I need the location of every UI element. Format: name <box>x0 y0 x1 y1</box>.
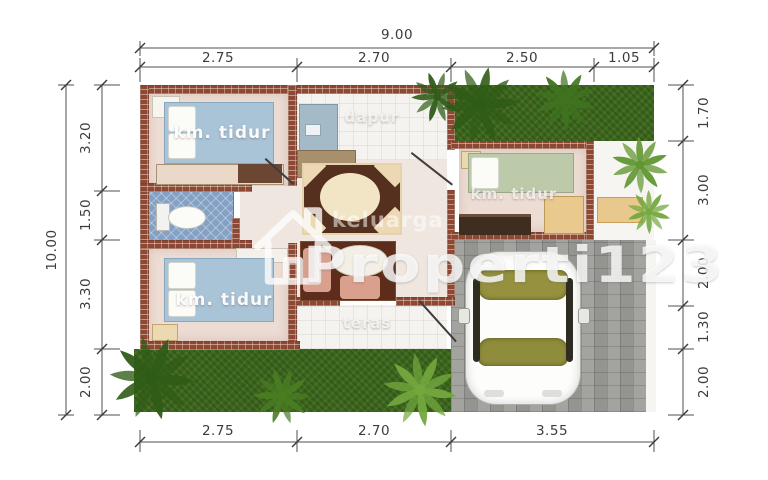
dim-bottom-seg-2: 2.70 <box>342 423 406 439</box>
dim-top-seg-1: 2.75 <box>186 50 250 66</box>
room-label-bedroom-top-left: km. tidur <box>173 123 270 143</box>
wardrobe <box>459 214 531 235</box>
wall <box>140 85 149 350</box>
dim-right-seg-5: 2.00 <box>696 350 712 414</box>
watermark-brand: Properti123 <box>303 236 725 294</box>
room-label-kitchen: dapur <box>345 108 400 126</box>
dim-right-seg-1: 1.70 <box>696 81 712 145</box>
wall <box>288 85 297 186</box>
toilet-bowl <box>168 206 206 229</box>
watermark-tagline: keluarga <box>332 208 444 232</box>
wall <box>232 218 240 249</box>
rug-diamond <box>302 163 326 187</box>
dim-right-seg-2: 3.00 <box>696 158 712 222</box>
kitchen-sink <box>305 124 321 136</box>
car-rear-window <box>478 338 568 366</box>
floor-plan-image: 9.00 2.75 2.70 2.50 1.05 10.00 3.20 1.50… <box>0 0 768 480</box>
pillow <box>168 262 196 289</box>
car-headlight <box>484 390 504 397</box>
dim-left-seg-4: 2.00 <box>78 350 94 414</box>
car-mirror <box>578 308 590 324</box>
dim-left-total: 10.00 <box>44 218 60 282</box>
dim-bottom-seg-3: 3.55 <box>520 423 584 439</box>
wall <box>586 141 594 240</box>
room-label-bedroom-right: km. tidur <box>471 185 558 203</box>
wall <box>396 297 455 306</box>
room-label-bedroom-bottom-left: km. tidur <box>175 290 272 310</box>
rug-diamond <box>374 163 402 187</box>
car-mirror <box>458 308 470 324</box>
dim-top-seg-4: 1.05 <box>592 50 656 66</box>
dim-left-seg-3: 3.30 <box>78 262 94 326</box>
room-label-terrace: teras <box>343 314 392 332</box>
plant-icon <box>99 325 206 432</box>
dim-bottom-seg-1: 2.75 <box>186 423 250 439</box>
dim-left-seg-1: 3.20 <box>78 106 94 170</box>
dim-top-total: 9.00 <box>365 27 429 43</box>
dim-left-seg-2: 1.50 <box>78 183 94 247</box>
dim-top-seg-2: 2.70 <box>342 50 406 66</box>
car-headlight <box>542 390 562 397</box>
